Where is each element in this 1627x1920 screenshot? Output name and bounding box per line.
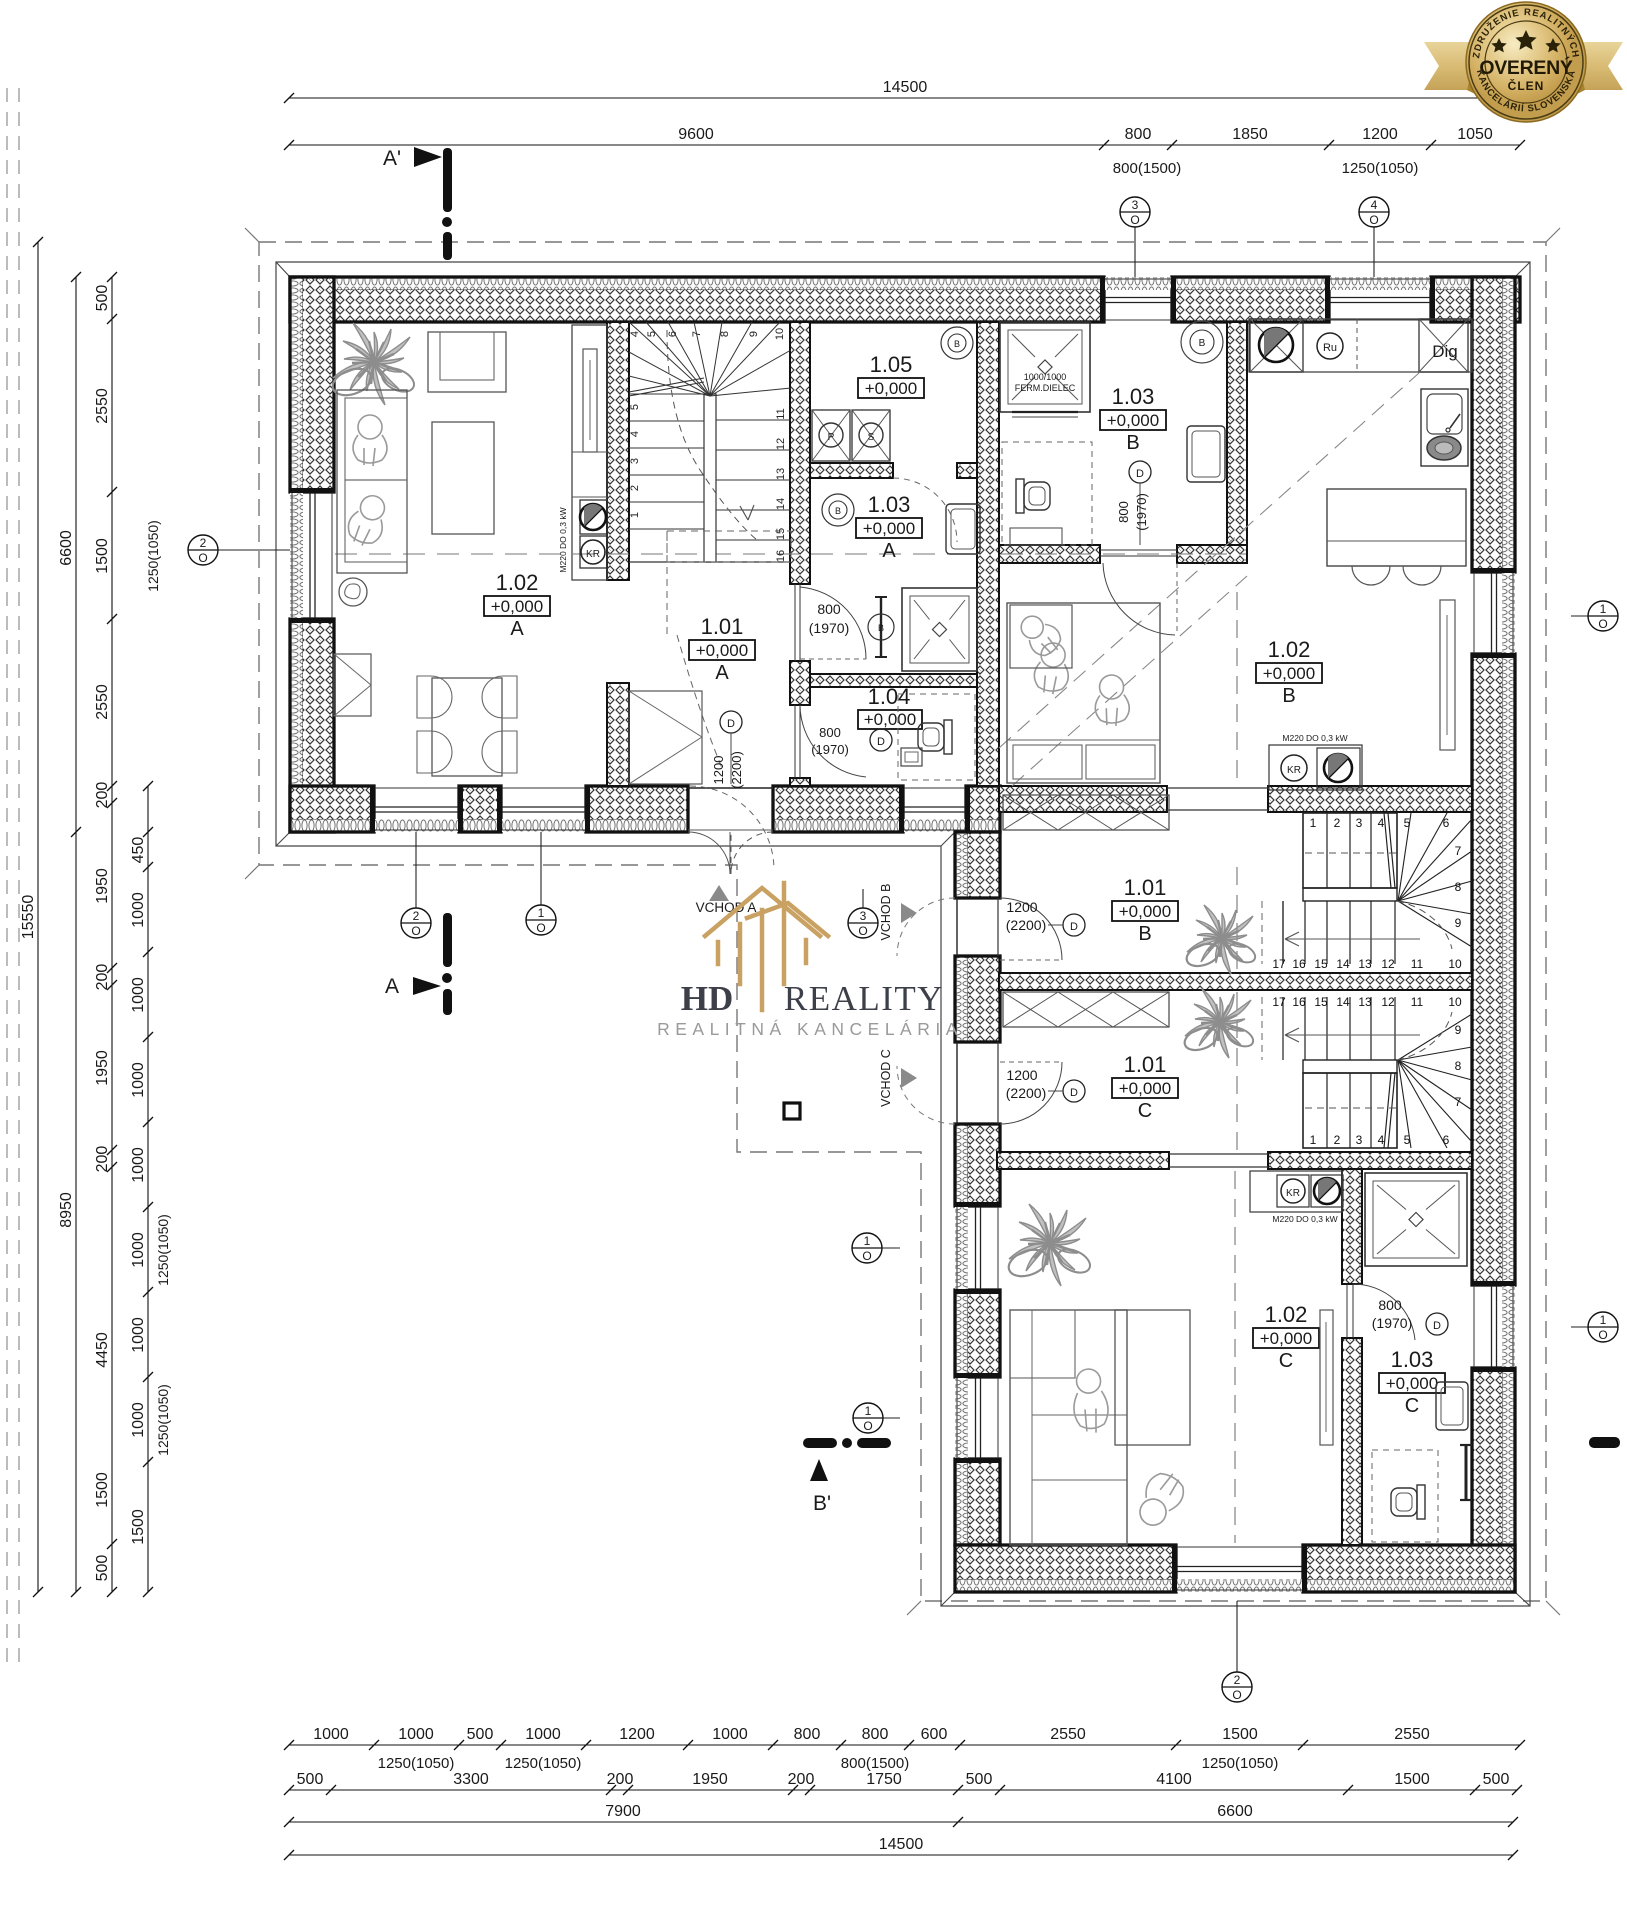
svg-text:8: 8: [719, 331, 731, 337]
svg-text:1250(1050): 1250(1050): [378, 1755, 455, 1772]
svg-text:5: 5: [629, 404, 641, 410]
svg-text:REALITNÁ KANCELÁRIA: REALITNÁ KANCELÁRIA: [657, 1019, 963, 1039]
svg-text:3300: 3300: [453, 1771, 489, 1788]
svg-text:3: 3: [860, 909, 867, 923]
svg-text:+0,000: +0,000: [1119, 902, 1171, 921]
svg-text:FERM.DIELEC: FERM.DIELEC: [1015, 383, 1076, 393]
svg-text:800: 800: [1378, 1297, 1402, 1313]
svg-text:800: 800: [1116, 501, 1131, 523]
svg-text:14: 14: [775, 498, 787, 510]
svg-text:3: 3: [1356, 1133, 1363, 1147]
svg-text:800(1500): 800(1500): [841, 1755, 909, 1772]
svg-text:4: 4: [629, 431, 641, 437]
svg-text:1000: 1000: [313, 1726, 349, 1743]
svg-text:500: 500: [94, 1555, 111, 1582]
svg-text:M220 DO 0,3 kW: M220 DO 0,3 kW: [1282, 733, 1347, 743]
svg-text:1.05: 1.05: [870, 352, 913, 377]
svg-text:6: 6: [1443, 816, 1450, 830]
svg-text:800: 800: [819, 725, 841, 740]
svg-text:A': A': [383, 147, 401, 170]
svg-text:1850: 1850: [1232, 126, 1268, 143]
svg-text:1: 1: [1600, 602, 1607, 616]
svg-text:HD: HD: [681, 979, 734, 1018]
svg-text:3: 3: [629, 458, 641, 464]
svg-text:B: B: [878, 623, 884, 633]
svg-text:+0,000: +0,000: [863, 519, 915, 538]
svg-text:1950: 1950: [692, 1771, 728, 1788]
svg-text:200: 200: [94, 1146, 111, 1173]
svg-text:2: 2: [1234, 1673, 1241, 1687]
svg-text:1: 1: [864, 1234, 871, 1248]
svg-text:17: 17: [1272, 957, 1286, 971]
svg-text:8: 8: [1455, 1059, 1462, 1073]
svg-text:1250(1050): 1250(1050): [1202, 1755, 1279, 1772]
svg-text:5: 5: [1404, 816, 1411, 830]
svg-text:B: B: [1199, 338, 1206, 349]
svg-text:1: 1: [1600, 1313, 1607, 1327]
svg-text:10: 10: [1448, 957, 1462, 971]
svg-text:1: 1: [1310, 816, 1317, 830]
svg-text:2550: 2550: [94, 684, 111, 720]
svg-text:1200: 1200: [1006, 1067, 1037, 1083]
svg-text:Dig: Dig: [1432, 342, 1458, 361]
svg-text:9: 9: [1455, 916, 1462, 930]
svg-text:1200: 1200: [619, 1726, 655, 1743]
svg-text:6: 6: [667, 331, 679, 337]
svg-text:1250(1050): 1250(1050): [145, 520, 161, 592]
svg-text:O: O: [411, 924, 420, 938]
svg-text:14: 14: [1336, 995, 1350, 1009]
svg-text:9600: 9600: [678, 126, 714, 143]
svg-text:800: 800: [817, 601, 841, 617]
svg-text:O: O: [858, 924, 867, 938]
svg-text:+0,000: +0,000: [1260, 1329, 1312, 1348]
svg-text:O: O: [1598, 1328, 1607, 1342]
svg-text:+0,000: +0,000: [864, 710, 916, 729]
svg-text:1250(1050): 1250(1050): [155, 1214, 171, 1286]
svg-text:800(1500): 800(1500): [1113, 160, 1181, 177]
svg-text:A: A: [385, 975, 399, 998]
svg-text:REALITY: REALITY: [784, 979, 944, 1018]
svg-text:6: 6: [1443, 1133, 1450, 1147]
svg-text:800: 800: [794, 1726, 821, 1743]
svg-text:S: S: [868, 432, 875, 443]
svg-text:O: O: [536, 921, 545, 935]
svg-text:17: 17: [1272, 995, 1286, 1009]
svg-text:1000: 1000: [130, 977, 147, 1013]
svg-text:9: 9: [1455, 1023, 1462, 1037]
svg-text:B: B: [1126, 432, 1139, 454]
svg-text:200: 200: [94, 964, 111, 991]
svg-text:P: P: [828, 432, 835, 443]
svg-text:5: 5: [1404, 1133, 1411, 1147]
svg-text:1250(1050): 1250(1050): [155, 1384, 171, 1456]
svg-text:1: 1: [629, 512, 641, 518]
svg-text:500: 500: [1483, 1771, 1510, 1788]
svg-text:B': B': [813, 1492, 831, 1515]
svg-text:800: 800: [1125, 126, 1152, 143]
svg-text:1750: 1750: [866, 1771, 902, 1788]
svg-text:M220 DO 0,3 kW: M220 DO 0,3 kW: [558, 507, 568, 572]
svg-text:D: D: [877, 736, 885, 748]
svg-text:A: A: [715, 662, 729, 684]
svg-text:+0,000: +0,000: [696, 641, 748, 660]
svg-text:1.02: 1.02: [1265, 1302, 1308, 1327]
svg-text:5: 5: [646, 331, 658, 337]
svg-text:800: 800: [862, 1726, 889, 1743]
svg-text:15550: 15550: [20, 895, 37, 940]
svg-text:8: 8: [1455, 880, 1462, 894]
svg-text:1: 1: [1310, 1133, 1317, 1147]
svg-text:D: D: [727, 718, 735, 730]
svg-text:12: 12: [1381, 957, 1395, 971]
svg-text:1050: 1050: [1457, 126, 1493, 143]
svg-text:7: 7: [1455, 1095, 1462, 1109]
svg-text:6600: 6600: [58, 530, 75, 566]
svg-text:B: B: [1138, 923, 1151, 945]
svg-text:1500: 1500: [1222, 1726, 1258, 1743]
svg-text:1200: 1200: [1006, 899, 1037, 915]
svg-text:1000: 1000: [525, 1726, 561, 1743]
svg-text:O: O: [1598, 617, 1607, 631]
svg-text:1000/1000: 1000/1000: [1024, 372, 1067, 382]
svg-text:13: 13: [775, 468, 787, 480]
svg-text:1.01: 1.01: [1124, 875, 1167, 900]
svg-text:KR: KR: [1287, 765, 1301, 776]
svg-text:450: 450: [130, 837, 147, 864]
svg-text:14: 14: [1336, 957, 1350, 971]
svg-text:4450: 4450: [94, 1332, 111, 1368]
svg-text:4: 4: [629, 331, 641, 337]
svg-text:1500: 1500: [130, 1509, 147, 1545]
svg-text:1000: 1000: [130, 1232, 147, 1268]
svg-text:O: O: [1130, 213, 1139, 227]
svg-text:1000: 1000: [398, 1726, 434, 1743]
svg-text:16: 16: [1292, 995, 1306, 1009]
svg-text:600: 600: [921, 1726, 948, 1743]
svg-text:4: 4: [1371, 198, 1378, 212]
svg-text:4: 4: [1378, 816, 1385, 830]
svg-text:A: A: [510, 618, 524, 640]
svg-text:+0,000: +0,000: [1263, 664, 1315, 683]
svg-text:(1970): (1970): [1134, 493, 1149, 531]
svg-text:2: 2: [1334, 816, 1341, 830]
svg-text:7: 7: [691, 331, 703, 337]
svg-text:VCHOD C: VCHOD C: [879, 1049, 893, 1107]
svg-text:KR: KR: [586, 549, 600, 560]
svg-text:C: C: [1405, 1395, 1419, 1417]
svg-text:B: B: [954, 339, 960, 349]
svg-text:1500: 1500: [94, 538, 111, 574]
svg-text:C: C: [1138, 1100, 1152, 1122]
svg-text:1.03: 1.03: [868, 492, 911, 517]
svg-text:500: 500: [94, 285, 111, 312]
svg-text:200: 200: [788, 1771, 815, 1788]
svg-text:(1970): (1970): [811, 742, 849, 757]
svg-text:1.02: 1.02: [1268, 637, 1311, 662]
svg-text:1000: 1000: [712, 1726, 748, 1743]
svg-text:15: 15: [1314, 995, 1328, 1009]
svg-text:200: 200: [94, 782, 111, 809]
svg-text:12: 12: [775, 438, 787, 450]
svg-text:1200: 1200: [711, 756, 726, 785]
svg-text:O: O: [862, 1249, 871, 1263]
svg-text:10: 10: [774, 328, 786, 340]
svg-text:8950: 8950: [58, 1192, 75, 1228]
svg-text:D: D: [1070, 921, 1078, 933]
svg-text:C: C: [1279, 1350, 1293, 1372]
svg-text:O: O: [1369, 213, 1378, 227]
svg-text:1000: 1000: [130, 1402, 147, 1438]
svg-text:2: 2: [200, 536, 207, 550]
svg-text:O: O: [198, 551, 207, 565]
svg-text:15: 15: [775, 528, 787, 540]
svg-text:13: 13: [1358, 995, 1372, 1009]
svg-text:4100: 4100: [1156, 1771, 1192, 1788]
svg-text:2: 2: [1334, 1133, 1341, 1147]
svg-text:16: 16: [775, 550, 787, 562]
svg-text:500: 500: [297, 1771, 324, 1788]
svg-text:(2200): (2200): [1006, 1085, 1046, 1101]
svg-text:1.01: 1.01: [701, 614, 744, 639]
svg-text:10: 10: [1448, 995, 1462, 1009]
svg-text:(1970): (1970): [1372, 1315, 1412, 1331]
svg-text:1: 1: [865, 1404, 872, 1418]
svg-text:+0,000: +0,000: [865, 379, 917, 398]
svg-text:1000: 1000: [130, 1062, 147, 1098]
svg-text:2550: 2550: [1394, 1726, 1430, 1743]
svg-text:VCHOD B: VCHOD B: [879, 884, 893, 941]
svg-text:1500: 1500: [94, 1472, 111, 1508]
svg-text:1950: 1950: [94, 868, 111, 904]
svg-text:15: 15: [1314, 957, 1328, 971]
svg-text:6600: 6600: [1217, 1803, 1253, 1820]
svg-text:2550: 2550: [94, 388, 111, 424]
svg-text:ČLEN: ČLEN: [1508, 78, 1545, 93]
svg-text:KR: KR: [1286, 1188, 1300, 1199]
svg-text:7900: 7900: [605, 1803, 641, 1820]
svg-text:D: D: [1070, 1087, 1078, 1099]
svg-text:1.01: 1.01: [1124, 1052, 1167, 1077]
svg-text:O: O: [1232, 1688, 1241, 1702]
svg-text:2: 2: [629, 485, 641, 491]
svg-text:500: 500: [467, 1726, 494, 1743]
svg-text:9: 9: [748, 331, 760, 337]
svg-text:3: 3: [1132, 198, 1139, 212]
svg-text:1200: 1200: [1362, 126, 1398, 143]
svg-text:500: 500: [966, 1771, 993, 1788]
svg-text:1000: 1000: [130, 892, 147, 928]
svg-text:1000: 1000: [130, 1317, 147, 1353]
svg-text:11: 11: [1411, 957, 1424, 971]
svg-text:14500: 14500: [879, 1836, 924, 1853]
svg-text:B: B: [1282, 685, 1295, 707]
svg-text:O: O: [863, 1419, 872, 1433]
svg-text:A: A: [882, 540, 896, 562]
svg-text:1.04: 1.04: [868, 684, 911, 709]
svg-text:13: 13: [1358, 957, 1372, 971]
svg-text:11: 11: [775, 408, 787, 419]
svg-text:1250(1050): 1250(1050): [505, 1755, 582, 1772]
svg-text:+0,000: +0,000: [491, 597, 543, 616]
svg-text:4: 4: [1378, 1133, 1385, 1147]
svg-text:1250(1050): 1250(1050): [1342, 160, 1419, 177]
svg-text:+0,000: +0,000: [1386, 1374, 1438, 1393]
svg-text:+0,000: +0,000: [1107, 411, 1159, 430]
svg-text:2550: 2550: [1050, 1726, 1086, 1743]
svg-text:1.03: 1.03: [1391, 1347, 1434, 1372]
svg-text:1500: 1500: [1394, 1771, 1430, 1788]
svg-text:(2200): (2200): [1006, 917, 1046, 933]
svg-text:(1970): (1970): [809, 620, 849, 636]
svg-text:16: 16: [1292, 957, 1306, 971]
svg-text:OVERENÝ: OVERENÝ: [1479, 55, 1573, 79]
svg-text:14500: 14500: [883, 79, 928, 96]
svg-text:Ru: Ru: [1323, 342, 1337, 354]
svg-text:200: 200: [607, 1771, 634, 1788]
svg-text:7: 7: [1455, 844, 1462, 858]
svg-text:2: 2: [413, 909, 420, 923]
svg-text:+0,000: +0,000: [1119, 1079, 1171, 1098]
svg-text:1000: 1000: [130, 1147, 147, 1183]
svg-text:3: 3: [1356, 816, 1363, 830]
svg-text:1.03: 1.03: [1112, 384, 1155, 409]
svg-text:M220 DO 0,3 kW: M220 DO 0,3 kW: [1272, 1214, 1337, 1224]
svg-text:D: D: [1136, 468, 1144, 480]
svg-text:1950: 1950: [94, 1050, 111, 1086]
svg-text:1: 1: [538, 906, 545, 920]
svg-text:11: 11: [1411, 995, 1424, 1009]
svg-text:B: B: [835, 506, 841, 516]
svg-text:D: D: [1433, 1320, 1441, 1332]
svg-text:1.02: 1.02: [496, 570, 539, 595]
svg-text:12: 12: [1381, 995, 1395, 1009]
